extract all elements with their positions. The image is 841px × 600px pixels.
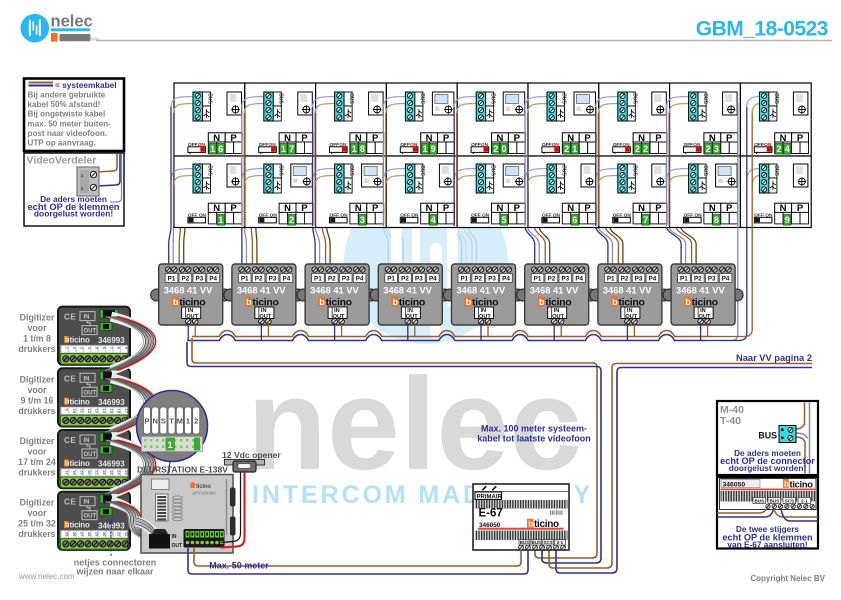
svg-text:IN: IN xyxy=(84,376,90,382)
svg-text:0: 0 xyxy=(501,144,506,154)
svg-text:1: 1 xyxy=(281,144,286,154)
svg-text:4: 4 xyxy=(785,144,790,154)
svg-text:P1: P1 xyxy=(680,276,688,283)
svg-text:P3: P3 xyxy=(708,276,716,283)
svg-text:P2: P2 xyxy=(182,276,190,283)
svg-text:2-1: 2-1 xyxy=(557,540,564,545)
svg-text:ticino: ticino xyxy=(70,521,90,530)
svg-text:2: 2 xyxy=(493,144,498,154)
svg-text:voor: voor xyxy=(27,323,47,333)
svg-text:PRIMAIR: PRIMAIR xyxy=(477,494,503,500)
svg-text:P2: P2 xyxy=(401,276,409,283)
svg-text:9: 9 xyxy=(431,144,436,154)
svg-text:BUS: BUS xyxy=(277,93,283,104)
svg-text:P1: P1 xyxy=(534,276,542,283)
svg-text:Bij ongetwiste kabel: Bij ongetwiste kabel xyxy=(28,110,106,119)
svg-text:Digitizer: Digitizer xyxy=(20,313,55,323)
svg-text:P3: P3 xyxy=(195,276,203,283)
svg-text:drukkers: drukkers xyxy=(18,344,55,354)
svg-text:M: M xyxy=(177,417,183,426)
svg-text:Copyright Nelec BV: Copyright Nelec BV xyxy=(750,574,825,583)
svg-text:GBM_18-0523: GBM_18-0523 xyxy=(696,18,828,41)
svg-text:346993: 346993 xyxy=(98,336,125,345)
svg-text:Naar VV pagina 2: Naar VV pagina 2 xyxy=(736,353,812,363)
svg-text:P: P xyxy=(144,417,149,426)
svg-text:P3: P3 xyxy=(635,276,643,283)
svg-text:BUS: BUS xyxy=(773,165,779,176)
svg-text:2: 2 xyxy=(194,417,198,426)
svg-text:b: b xyxy=(612,297,618,307)
svg-text:IN: IN xyxy=(172,534,177,540)
svg-text:b: b xyxy=(528,520,533,529)
svg-text:BUS: BUS xyxy=(419,93,425,104)
svg-text:BUS: BUS xyxy=(769,498,779,503)
svg-text:P2: P2 xyxy=(548,276,556,283)
svg-text:2: 2 xyxy=(635,144,640,154)
svg-text:nelec: nelec xyxy=(51,13,93,31)
svg-text:8: 8 xyxy=(360,144,365,154)
svg-text:T: T xyxy=(169,417,174,426)
svg-text:1: 1 xyxy=(572,144,577,154)
svg-text:max. 50 meter buiten-: max. 50 meter buiten- xyxy=(28,119,112,128)
svg-text:25 t/m 32: 25 t/m 32 xyxy=(18,519,56,529)
svg-text:b: b xyxy=(466,297,472,307)
svg-text:b: b xyxy=(393,297,399,307)
svg-text:van E-67 aansluiten!: van E-67 aansluiten! xyxy=(727,539,807,549)
svg-text:voor: voor xyxy=(27,447,47,457)
svg-text:BUS: BUS xyxy=(207,165,213,176)
svg-text:kabel 50% afstand!: kabel 50% afstand! xyxy=(28,100,101,109)
svg-text:post naar videofoon.: post naar videofoon. xyxy=(28,129,108,138)
svg-text:3468 41 VV: 3468 41 VV xyxy=(603,286,652,296)
svg-text:b: b xyxy=(173,297,179,307)
svg-text:DEURSTATION E-138V: DEURSTATION E-138V xyxy=(137,465,228,475)
svg-text:kabel tot laatste videofoon: kabel tot laatste videofoon xyxy=(477,434,591,444)
svg-text:3468 41 VV: 3468 41 VV xyxy=(383,286,432,296)
svg-text:9: 9 xyxy=(785,215,790,225)
svg-text:b: b xyxy=(685,297,691,307)
svg-text:OUT: OUT xyxy=(84,390,97,396)
svg-text:BUS: BUS xyxy=(561,93,567,104)
svg-text:N: N xyxy=(152,417,157,426)
svg-text:P1: P1 xyxy=(607,276,615,283)
svg-text:1: 1 xyxy=(210,144,215,154)
svg-text:3468 41 VV: 3468 41 VV xyxy=(164,286,213,296)
svg-text:CE: CE xyxy=(64,313,76,322)
svg-text:2: 2 xyxy=(289,215,294,225)
svg-text:1: 1 xyxy=(186,417,190,426)
svg-text:S: S xyxy=(161,417,166,426)
svg-text:346993: 346993 xyxy=(98,398,125,407)
svg-text:12 Vdc opener: 12 Vdc opener xyxy=(222,450,281,460)
svg-text:SCS: SCS xyxy=(785,498,794,503)
svg-text:voor: voor xyxy=(27,385,47,395)
svg-text:7: 7 xyxy=(289,144,294,154)
svg-text:= systeemkabel: = systeemkabel xyxy=(55,80,117,90)
svg-text:2: 2 xyxy=(706,144,711,154)
svg-text:ticino: ticino xyxy=(534,519,559,530)
svg-text:Digitizer: Digitizer xyxy=(20,498,55,508)
svg-text:P1: P1 xyxy=(314,276,322,283)
svg-text:P4: P4 xyxy=(502,276,510,283)
svg-text:BUS: BUS xyxy=(419,165,425,176)
svg-text:P1: P1 xyxy=(168,276,176,283)
svg-text:SCS: SCS xyxy=(544,540,553,545)
svg-text:Bij andere gebruikte: Bij andere gebruikte xyxy=(28,91,106,100)
svg-text:3468 41 VV: 3468 41 VV xyxy=(676,286,725,296)
svg-text:P1: P1 xyxy=(241,276,249,283)
svg-text:P4: P4 xyxy=(722,276,730,283)
svg-text:6: 6 xyxy=(218,144,223,154)
svg-text:CE: CE xyxy=(64,498,76,507)
svg-text:P2: P2 xyxy=(474,276,482,283)
svg-text:OUT: OUT xyxy=(84,329,97,335)
svg-text:346050: 346050 xyxy=(723,481,746,488)
svg-text:P4: P4 xyxy=(429,276,437,283)
svg-text:doorgelust worden!: doorgelust worden! xyxy=(34,208,114,218)
svg-text:b: b xyxy=(246,297,252,307)
svg-text:BUS: BUS xyxy=(348,165,354,176)
svg-text:drukkers: drukkers xyxy=(18,468,55,478)
svg-text:voor: voor xyxy=(27,508,47,518)
svg-text:BUS: BUS xyxy=(773,93,779,104)
svg-text:P4: P4 xyxy=(209,276,217,283)
svg-text:E-67: E-67 xyxy=(479,508,503,520)
svg-text:b: b xyxy=(784,480,789,489)
svg-text:4: 4 xyxy=(431,215,436,225)
svg-text:1: 1 xyxy=(168,440,174,451)
svg-text:P4: P4 xyxy=(356,276,364,283)
svg-text:ticino: ticino xyxy=(196,484,211,490)
svg-text:BUS: BUS xyxy=(631,165,637,176)
svg-text:P4: P4 xyxy=(283,276,291,283)
svg-text:3468 41 VV: 3468 41 VV xyxy=(237,286,286,296)
svg-text:VideoVerdeler: VideoVerdeler xyxy=(27,155,97,167)
svg-text:P3: P3 xyxy=(561,276,569,283)
svg-text:BUS: BUS xyxy=(348,93,354,104)
svg-text:P4: P4 xyxy=(649,276,657,283)
svg-text:BUS: BUS xyxy=(758,431,777,441)
svg-text:P3: P3 xyxy=(415,276,423,283)
svg-text:25: 25 xyxy=(124,470,129,475)
svg-text:BUS: BUS xyxy=(207,93,213,104)
svg-text:OUT: OUT xyxy=(84,452,97,458)
svg-text:BUS: BUS xyxy=(277,165,283,176)
svg-text:ticino: ticino xyxy=(70,459,90,468)
svg-text:IN: IN xyxy=(84,438,90,444)
svg-text:Digitizer: Digitizer xyxy=(20,374,55,384)
svg-text:Digitizer: Digitizer xyxy=(20,436,55,446)
svg-text:b: b xyxy=(319,297,325,307)
svg-text:BUS: BUS xyxy=(520,540,529,545)
svg-text:3: 3 xyxy=(714,144,719,154)
svg-text:2: 2 xyxy=(643,144,648,154)
svg-text:3468 41 VV: 3468 41 VV xyxy=(457,286,506,296)
svg-text:IN: IN xyxy=(84,315,90,321)
svg-text:T-40: T-40 xyxy=(720,415,741,427)
svg-text:9 t/m 16: 9 t/m 16 xyxy=(21,395,54,405)
svg-text:P3: P3 xyxy=(269,276,277,283)
svg-text:1: 1 xyxy=(422,144,427,154)
svg-text:8: 8 xyxy=(714,215,719,225)
svg-text:Max. 100 meter systeem-: Max. 100 meter systeem- xyxy=(481,424,587,434)
svg-text:drukkers: drukkers xyxy=(18,529,55,539)
svg-text:P3: P3 xyxy=(488,276,496,283)
svg-text:Max. 50 meter: Max. 50 meter xyxy=(209,561,269,571)
svg-text:1: 1 xyxy=(352,144,357,154)
svg-text:www.nelec.com: www.nelec.com xyxy=(18,572,75,581)
svg-text:BUS: BUS xyxy=(702,165,708,176)
svg-text:2-1: 2-1 xyxy=(801,498,808,503)
svg-text:BUS: BUS xyxy=(702,93,708,104)
svg-text:3468 41 VV: 3468 41 VV xyxy=(530,286,579,296)
svg-text:1: 1 xyxy=(218,215,223,225)
svg-text:IN: IN xyxy=(84,500,90,506)
svg-text:BUS: BUS xyxy=(532,540,541,545)
svg-text:P1: P1 xyxy=(460,276,468,283)
svg-text:5: 5 xyxy=(501,215,506,225)
svg-text:BUS: BUS xyxy=(561,165,567,176)
svg-text:P2: P2 xyxy=(621,276,629,283)
svg-text:3: 3 xyxy=(360,215,365,225)
svg-text:346993: 346993 xyxy=(98,460,125,469)
svg-text:P3: P3 xyxy=(342,276,350,283)
svg-text:3468 41 VV: 3468 41 VV xyxy=(310,286,359,296)
svg-text:CE: CE xyxy=(64,436,76,445)
svg-text:doorgelust worden!: doorgelust worden! xyxy=(729,463,806,473)
svg-text:ticino: ticino xyxy=(70,336,90,345)
svg-text:P2: P2 xyxy=(694,276,702,283)
svg-text:BUS: BUS xyxy=(490,165,496,176)
svg-text:BUS: BUS xyxy=(631,93,637,104)
svg-text:P1: P1 xyxy=(387,276,395,283)
svg-text:33: 33 xyxy=(124,532,129,537)
svg-text:ART200300: ART200300 xyxy=(192,491,216,496)
svg-text:ticino: ticino xyxy=(70,397,90,406)
svg-text:OUT: OUT xyxy=(84,514,97,520)
svg-text:6: 6 xyxy=(572,215,577,225)
svg-text:P2: P2 xyxy=(328,276,336,283)
svg-text:1 t/m 8: 1 t/m 8 xyxy=(23,334,51,344)
svg-text:P4: P4 xyxy=(575,276,583,283)
svg-text:17: 17 xyxy=(124,409,129,414)
svg-text:7: 7 xyxy=(643,215,648,225)
svg-text:BUS: BUS xyxy=(754,498,764,503)
svg-text:UTP op aanvraag.: UTP op aanvraag. xyxy=(28,139,96,148)
svg-text:2: 2 xyxy=(564,144,569,154)
svg-text:17 t/m 24: 17 t/m 24 xyxy=(18,457,56,467)
svg-text:wijzen naar elkaar: wijzen naar elkaar xyxy=(75,567,154,577)
svg-text:drukkers: drukkers xyxy=(18,406,55,416)
svg-text:CE: CE xyxy=(64,374,76,383)
svg-text:P2: P2 xyxy=(255,276,263,283)
svg-text:2: 2 xyxy=(776,144,781,154)
svg-text:BUS: BUS xyxy=(490,93,496,104)
svg-text:b: b xyxy=(539,297,545,307)
svg-text:ticino: ticino xyxy=(790,478,814,489)
svg-text:OUT: OUT xyxy=(172,543,183,549)
